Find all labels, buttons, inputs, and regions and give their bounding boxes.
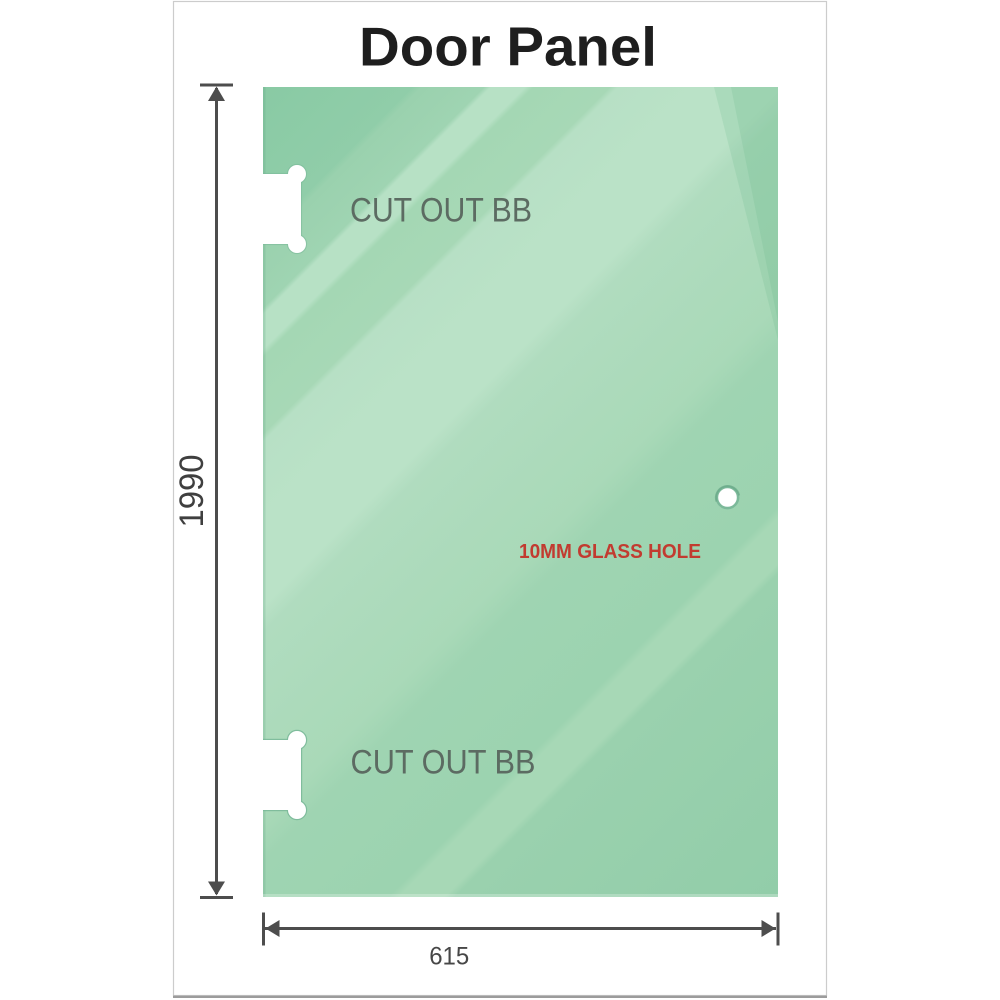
svg-text:1990: 1990 [173, 455, 211, 528]
svg-text:10MM GLASS HOLE: 10MM GLASS HOLE [519, 541, 701, 563]
svg-text:CUT OUT BB: CUT OUT BB [350, 192, 532, 230]
svg-text:615: 615 [429, 943, 469, 971]
svg-text:Door Panel: Door Panel [359, 16, 657, 78]
svg-text:CUT OUT BB: CUT OUT BB [351, 744, 536, 782]
